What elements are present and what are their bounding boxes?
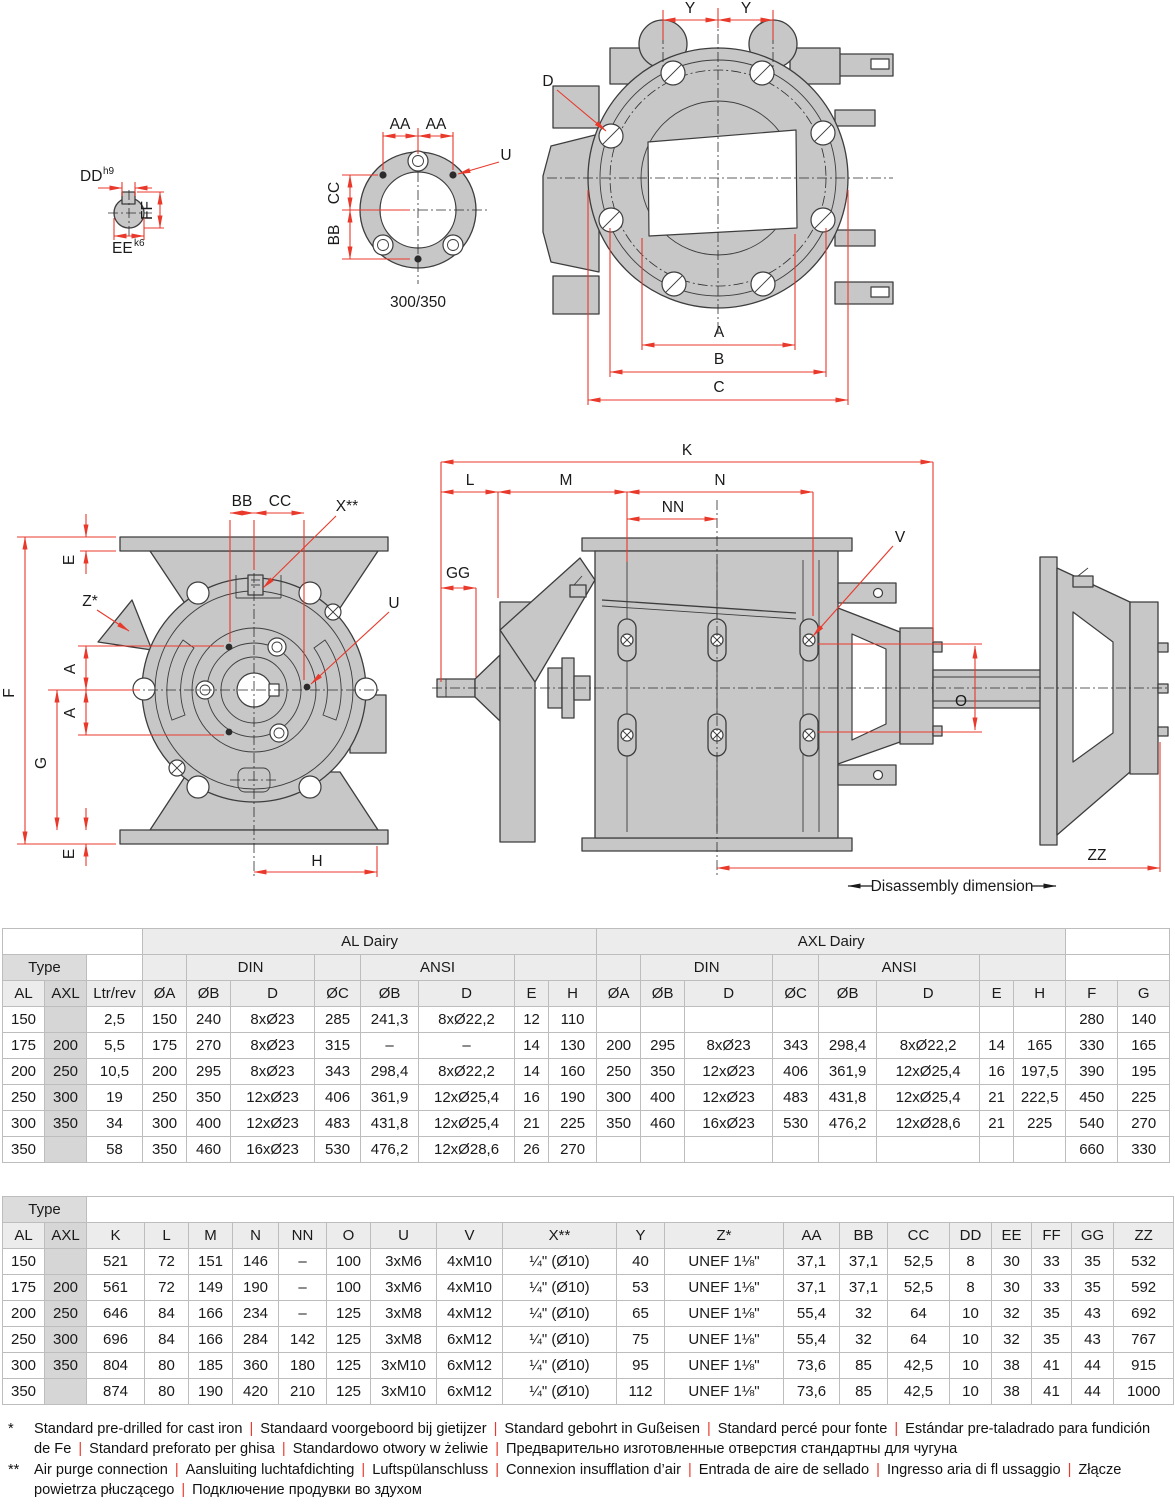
cell-r1-c7: 100 (327, 1275, 371, 1301)
header-row: AL DairyAXL Dairy (3, 929, 1170, 955)
cell-r2-c6: 343 (315, 1059, 361, 1085)
cell-r4-c20: 270 (1118, 1111, 1170, 1137)
separator: | (488, 1462, 506, 1478)
cell-r3-c13: 12xØ23 (685, 1085, 773, 1111)
dim-label-dd-tolerance: h9 (103, 166, 115, 177)
footnote: **Air purge connection|Aansluiting lucht… (8, 1461, 1166, 1500)
cell-r5-c0: 350 (3, 1137, 45, 1163)
cell-r5-c6: 210 (279, 1379, 327, 1405)
cell-r1-c1: 200 (45, 1275, 87, 1301)
separator: | (887, 1421, 905, 1437)
dim-label-x: X** (336, 498, 358, 515)
header-cell (515, 955, 597, 981)
cell-r0-c2: 521 (87, 1249, 145, 1275)
header-row: ALAXLKLMNNNOUVX**YZ*AABBCCDDEEFFGGZZ (3, 1223, 1174, 1249)
cell-r3-c14: 32 (840, 1327, 888, 1353)
table-row: 350874801904202101253xM106xM12¼" (Ø10)11… (3, 1379, 1174, 1405)
cell-r0-c0: 150 (3, 1249, 45, 1275)
cell-r0-c4: 240 (187, 1007, 231, 1033)
cell-r4-c16: 12xØ28,6 (877, 1111, 980, 1137)
cell-r3-c19: 43 (1072, 1327, 1114, 1353)
cell-r0-c10: ¼" (Ø10) (503, 1249, 617, 1275)
cell-r2-c2: 646 (87, 1301, 145, 1327)
cell-r2-c15: 361,9 (819, 1059, 877, 1085)
cell-r1-c14: 37,1 (840, 1275, 888, 1301)
cell-r2-c18: 35 (1032, 1301, 1072, 1327)
header-zz: ZZ (1114, 1223, 1174, 1249)
separator: | (700, 1421, 718, 1437)
dim-label-e-top: E (61, 555, 78, 565)
cell-r1-c3: 175 (143, 1033, 187, 1059)
cell-r3-c5: 12xØ23 (231, 1085, 315, 1111)
cell-r2-c13: 55,4 (784, 1301, 840, 1327)
cell-r5-c7: 125 (327, 1379, 371, 1405)
cell-r4-c0: 300 (3, 1111, 45, 1137)
header-o: O (327, 1223, 371, 1249)
cell-r4-c18: 41 (1032, 1353, 1072, 1379)
cell-r1-c7: – (361, 1033, 419, 1059)
separator: | (681, 1462, 699, 1478)
cell-r0-c6: 285 (315, 1007, 361, 1033)
dim-label-ee: EE (112, 240, 133, 257)
cell-r2-c1: 250 (45, 1301, 87, 1327)
header-row: Type (3, 1197, 1174, 1223)
cell-r1-c17: 14 (980, 1033, 1014, 1059)
cell-r2-c12: 350 (641, 1059, 685, 1085)
cell-r4-c4: 400 (187, 1111, 231, 1137)
cell-r2-c14: 406 (773, 1059, 819, 1085)
cell-r5-c16: 10 (950, 1379, 992, 1405)
header-cell (1066, 929, 1170, 955)
cell-r1-c9: 14 (515, 1033, 549, 1059)
dim-label-m: M (560, 472, 573, 489)
cell-r3-c1: 300 (45, 1327, 87, 1353)
table-row: 1752005,51752708xØ23315––141302002958xØ2… (3, 1033, 1170, 1059)
cell-r2-c20: 195 (1118, 1059, 1170, 1085)
cell-r4-c11: 350 (597, 1111, 641, 1137)
cell-r3-c16: 10 (950, 1327, 992, 1353)
cell-r0-c17: 30 (992, 1249, 1032, 1275)
cell-r3-c14: 483 (773, 1085, 819, 1111)
cell-r3-c4: 166 (189, 1327, 233, 1353)
cell-r1-c19: 35 (1072, 1275, 1114, 1301)
cell-r2-c16: 10 (950, 1301, 992, 1327)
header-al: AL (3, 1223, 45, 1249)
cell-r2-c5: 234 (233, 1301, 279, 1327)
cell-r1-c10: ¼" (Ø10) (503, 1275, 617, 1301)
cell-r0-c8: 3xM6 (371, 1249, 437, 1275)
cell-r2-c4: 166 (189, 1301, 233, 1327)
cell-r0-c2: 2,5 (87, 1007, 143, 1033)
header-y: Y (617, 1223, 665, 1249)
header-gg: GG (1072, 1223, 1114, 1249)
dim-label-b: B (714, 351, 724, 368)
cell-r1-c14: 343 (773, 1033, 819, 1059)
header-bb: BB (840, 1223, 888, 1249)
separator: | (488, 1441, 506, 1457)
cell-r2-c11: 65 (617, 1301, 665, 1327)
cell-r5-c15 (819, 1137, 877, 1163)
cell-r1-c20: 165 (1118, 1033, 1170, 1059)
cell-r3-c11: 300 (597, 1085, 641, 1111)
cell-r2-c10: 160 (549, 1059, 597, 1085)
cell-r0-c0: 150 (3, 1007, 45, 1033)
cell-r3-c10: 190 (549, 1085, 597, 1111)
cell-r1-c2: 5,5 (87, 1033, 143, 1059)
dim-label-y-left: Y (685, 0, 695, 17)
cell-r0-c18: 33 (1032, 1249, 1072, 1275)
cell-r1-c13: 37,1 (784, 1275, 840, 1301)
cell-r5-c5: 420 (233, 1379, 279, 1405)
header-cell (980, 955, 1066, 981)
cell-r1-c4: 149 (189, 1275, 233, 1301)
cell-r5-c13 (685, 1137, 773, 1163)
cell-r1-c0: 175 (3, 1275, 45, 1301)
cell-r3-c17: 32 (992, 1327, 1032, 1353)
cell-r5-c14: 85 (840, 1379, 888, 1405)
cell-r4-c15: 476,2 (819, 1111, 877, 1137)
cell-r5-c19: 660 (1066, 1137, 1118, 1163)
cell-r5-c1 (45, 1137, 87, 1163)
cell-r0-c8: 8xØ22,2 (419, 1007, 515, 1033)
cell-r4-c1: 350 (45, 1353, 87, 1379)
cell-r5-c10: 270 (549, 1137, 597, 1163)
cell-r0-c16: 8 (950, 1249, 992, 1275)
header-k: K (87, 1223, 145, 1249)
cell-r4-c17: 38 (992, 1353, 1032, 1379)
header-d: D (877, 981, 980, 1007)
cell-r2-c11: 250 (597, 1059, 641, 1085)
cell-r4-c19: 540 (1066, 1111, 1118, 1137)
header-din: DIN (641, 955, 773, 981)
cell-r1-c18: 165 (1014, 1033, 1066, 1059)
dim-label-aa-right: AA (426, 116, 447, 133)
cell-r5-c6: 530 (315, 1137, 361, 1163)
cell-r4-c6: 483 (315, 1111, 361, 1137)
header-dd: DD (950, 1223, 992, 1249)
cell-r3-c17: 21 (980, 1085, 1014, 1111)
cell-r4-c6: 180 (279, 1353, 327, 1379)
cell-r0-c5: 146 (233, 1249, 279, 1275)
header-d: D (231, 981, 315, 1007)
cell-r2-c3: 200 (143, 1059, 187, 1085)
shaft-section-drawing: DD h9 FF EE k6 (60, 140, 210, 270)
table-row: 2503001925035012xØ23406361,912xØ25,41619… (3, 1085, 1170, 1111)
cell-r4-c4: 185 (189, 1353, 233, 1379)
cell-r5-c4: 190 (189, 1379, 233, 1405)
cell-r4-c9: 6xM12 (437, 1353, 503, 1379)
cell-r4-c12: 460 (641, 1111, 685, 1137)
cell-r1-c4: 270 (187, 1033, 231, 1059)
cell-r0-c11: 40 (617, 1249, 665, 1275)
cell-r5-c12: UNEF 1⅛" (665, 1379, 784, 1405)
dairy-flange-dimensions-table: AL DairyAXL DairyTypeDINANSIDINANSIALAXL… (2, 928, 1170, 1163)
dim-label-d: D (542, 73, 553, 90)
cell-r2-c16: 12xØ25,4 (877, 1059, 980, 1085)
cell-r2-c17: 32 (992, 1301, 1032, 1327)
header-ansi: ANSI (361, 955, 515, 981)
cell-r4-c17: 21 (980, 1111, 1014, 1137)
header--c: ØC (773, 981, 819, 1007)
cell-r1-c2: 561 (87, 1275, 145, 1301)
cell-r0-c1 (45, 1007, 87, 1033)
cell-r5-c18: 41 (1032, 1379, 1072, 1405)
cell-r2-c4: 295 (187, 1059, 231, 1085)
dim-label-aa-left: AA (390, 116, 411, 133)
cell-r5-c18 (1014, 1137, 1066, 1163)
cell-r4-c3: 80 (145, 1353, 189, 1379)
cell-r4-c16: 10 (950, 1353, 992, 1379)
dim-label-cc: CC (269, 493, 291, 510)
cell-r5-c16 (877, 1137, 980, 1163)
header-cell (315, 955, 361, 981)
cell-r4-c7: 125 (327, 1353, 371, 1379)
cell-r1-c3: 72 (145, 1275, 189, 1301)
header-ff: FF (1032, 1223, 1072, 1249)
dim-label-e-bottom: E (61, 849, 78, 859)
side-view-drawing: K L M N NN GG V O ZZ Disassembly dimensi… (430, 430, 1175, 910)
cell-r5-c9: 26 (515, 1137, 549, 1163)
cell-r5-c0: 350 (3, 1379, 45, 1405)
cell-r1-c0: 175 (3, 1033, 45, 1059)
cell-r1-c1: 200 (45, 1033, 87, 1059)
header--a: ØA (597, 981, 641, 1007)
cell-r5-c13: 73,6 (784, 1379, 840, 1405)
header-cell (3, 929, 143, 955)
cell-r5-c1 (45, 1379, 87, 1405)
dim-label-l: L (466, 472, 475, 489)
cell-r3-c13: 55,4 (784, 1327, 840, 1353)
cell-r5-c17 (980, 1137, 1014, 1163)
separator: | (354, 1462, 372, 1478)
cell-r1-c13: 8xØ23 (685, 1033, 773, 1059)
cell-r3-c9: 6xM12 (437, 1327, 503, 1353)
general-dimensions-table: TypeALAXLKLMNNNOUVX**YZ*AABBCCDDEEFFGGZZ… (2, 1196, 1174, 1405)
header-type: Type (3, 1197, 87, 1223)
cell-r2-c6: – (279, 1301, 327, 1327)
footnote-text: Standard pre-drilled for cast iron|Stand… (34, 1421, 1150, 1457)
cell-r0-c3: 72 (145, 1249, 189, 1275)
dim-label-k: K (682, 442, 693, 459)
table-row: 15052172151146–1003xM64xM10¼" (Ø10)40UNE… (3, 1249, 1174, 1275)
cell-r0-c13: 37,1 (784, 1249, 840, 1275)
header-din: DIN (187, 955, 315, 981)
cell-r2-c9: 14 (515, 1059, 549, 1085)
cell-r3-c18: 222,5 (1014, 1085, 1066, 1111)
cell-r0-c19: 35 (1072, 1249, 1114, 1275)
cell-r2-c2: 10,5 (87, 1059, 143, 1085)
header-al: AL (3, 981, 45, 1007)
dim-label-g: G (33, 757, 50, 769)
cell-r3-c12: 400 (641, 1085, 685, 1111)
dim-label-c: C (713, 379, 724, 396)
cell-r5-c19: 44 (1072, 1379, 1114, 1405)
separator: | (168, 1462, 186, 1478)
cell-r0-c4: 151 (189, 1249, 233, 1275)
cell-r5-c15: 42,5 (888, 1379, 950, 1405)
cell-r4-c1: 350 (45, 1111, 87, 1137)
cell-r3-c6: 142 (279, 1327, 327, 1353)
cell-r0-c16 (877, 1007, 980, 1033)
cell-r5-c8: 3xM10 (371, 1379, 437, 1405)
dim-label-ee-tolerance: k6 (134, 238, 145, 249)
cell-r4-c20: 915 (1114, 1353, 1174, 1379)
separator: | (275, 1441, 293, 1457)
dim-label-f: F (1, 688, 18, 697)
cell-r4-c13: 73,6 (784, 1353, 840, 1379)
header-h: H (549, 981, 597, 1007)
cell-r0-c14 (773, 1007, 819, 1033)
cell-r3-c5: 284 (233, 1327, 279, 1353)
cell-r1-c16: 8xØ22,2 (877, 1033, 980, 1059)
cell-r0-c14: 37,1 (840, 1249, 888, 1275)
cell-r2-c20: 692 (1114, 1301, 1174, 1327)
cell-r4-c8: 12xØ25,4 (419, 1111, 515, 1137)
cell-r3-c3: 84 (145, 1327, 189, 1353)
separator: | (71, 1441, 89, 1457)
table-row: 250300696841662841421253xM86xM12¼" (Ø10)… (3, 1327, 1174, 1353)
cell-r0-c19: 280 (1066, 1007, 1118, 1033)
dim-label-dd: DD (80, 168, 102, 185)
cell-r4-c5: 12xØ23 (231, 1111, 315, 1137)
separator: | (1061, 1462, 1079, 1478)
header-d: D (685, 981, 773, 1007)
footnote: *Standard pre-drilled for cast iron|Stan… (8, 1420, 1166, 1459)
cell-r1-c8: – (419, 1033, 515, 1059)
cell-r4-c5: 360 (233, 1353, 279, 1379)
cell-r5-c17: 38 (992, 1379, 1032, 1405)
cell-r0-c20: 140 (1118, 1007, 1170, 1033)
dim-label-y-right: Y (741, 0, 751, 17)
cell-r5-c5: 16xØ23 (231, 1137, 315, 1163)
inlet-view-drawing: Y Y D A B C (535, 0, 965, 412)
dim-label-v: V (895, 529, 906, 546)
cell-r4-c8: 3xM10 (371, 1353, 437, 1379)
cell-r3-c11: 75 (617, 1327, 665, 1353)
dim-label-ff: FF (139, 201, 156, 220)
cell-r4-c10: 225 (549, 1111, 597, 1137)
header-l: L (145, 1223, 189, 1249)
separator: | (174, 1482, 192, 1498)
header-f: F (1066, 981, 1118, 1007)
cell-r2-c0: 200 (3, 1301, 45, 1327)
header-type: Type (3, 955, 87, 981)
header-cell (597, 955, 641, 981)
header-al-dairy: AL Dairy (143, 929, 597, 955)
cell-r0-c15 (819, 1007, 877, 1033)
cell-r5-c7: 476,2 (361, 1137, 419, 1163)
cell-r0-c10: 110 (549, 1007, 597, 1033)
cell-r3-c2: 696 (87, 1327, 145, 1353)
cell-r2-c19: 43 (1072, 1301, 1114, 1327)
cell-r2-c7: 125 (327, 1301, 371, 1327)
cell-r3-c0: 250 (3, 1327, 45, 1353)
cell-r3-c8: 3xM8 (371, 1327, 437, 1353)
cell-r1-c15: 52,5 (888, 1275, 950, 1301)
header-d: D (419, 981, 515, 1007)
header-cell (1066, 955, 1170, 981)
cell-r2-c7: 298,4 (361, 1059, 419, 1085)
cell-r4-c19: 44 (1072, 1353, 1114, 1379)
cell-r2-c10: ¼" (Ø10) (503, 1301, 617, 1327)
cell-r2-c8: 8xØ22,2 (419, 1059, 515, 1085)
dim-label-u: U (500, 147, 511, 164)
cell-r0-c17 (980, 1007, 1014, 1033)
cell-r2-c9: 4xM12 (437, 1301, 503, 1327)
cell-r2-c19: 390 (1066, 1059, 1118, 1085)
disassembly-note: Disassembly dimension (871, 878, 1034, 895)
cell-r4-c2: 34 (87, 1111, 143, 1137)
dim-label-gg: GG (446, 565, 470, 582)
cell-r0-c1 (45, 1249, 87, 1275)
header-nn: NN (279, 1223, 327, 1249)
cell-r0-c15: 52,5 (888, 1249, 950, 1275)
header--c: ØC (315, 981, 361, 1007)
cell-r0-c9: 4xM10 (437, 1249, 503, 1275)
cell-r1-c11: 53 (617, 1275, 665, 1301)
table-row: 3505835046016xØ23530476,212xØ28,62627066… (3, 1137, 1170, 1163)
cell-r0-c3: 150 (143, 1007, 187, 1033)
footnote-text: Air purge connection|Aansluiting luchtaf… (34, 1462, 1121, 1498)
cell-r1-c20: 592 (1114, 1275, 1174, 1301)
cell-r3-c20: 767 (1114, 1327, 1174, 1353)
cell-r4-c9: 21 (515, 1111, 549, 1137)
table-row: 20025010,52002958xØ23343298,48xØ22,21416… (3, 1059, 1170, 1085)
cell-r1-c18: 33 (1032, 1275, 1072, 1301)
dim-label-bb: BB (232, 493, 253, 510)
header-axl: AXL (45, 981, 87, 1007)
cell-r3-c9: 16 (515, 1085, 549, 1111)
cell-r0-c11 (597, 1007, 641, 1033)
dim-label-bb: BB (326, 225, 343, 246)
cell-r4-c14: 85 (840, 1353, 888, 1379)
table-row: 1502,51502408xØ23285241,38xØ22,212110280… (3, 1007, 1170, 1033)
cell-r2-c15: 64 (888, 1301, 950, 1327)
cell-r2-c18: 197,5 (1014, 1059, 1066, 1085)
header-cell (87, 1197, 1174, 1223)
cell-r0-c20: 532 (1114, 1249, 1174, 1275)
cell-r4-c15: 42,5 (888, 1353, 950, 1379)
header--b: ØB (361, 981, 419, 1007)
header-cell (143, 955, 187, 981)
cell-r2-c5: 8xØ23 (231, 1059, 315, 1085)
cell-r4-c2: 804 (87, 1353, 145, 1379)
cell-r3-c3: 250 (143, 1085, 187, 1111)
cell-r2-c3: 84 (145, 1301, 189, 1327)
cell-r4-c12: UNEF 1⅛" (665, 1353, 784, 1379)
table-row: 300350804801853601801253xM106xM12¼" (Ø10… (3, 1353, 1174, 1379)
header-v: V (437, 1223, 503, 1249)
cell-r0-c5: 8xØ23 (231, 1007, 315, 1033)
cell-r5-c20: 330 (1118, 1137, 1170, 1163)
header-h: H (1014, 981, 1066, 1007)
cell-r5-c11 (597, 1137, 641, 1163)
cell-r1-c5: 8xØ23 (231, 1033, 315, 1059)
cell-r1-c6: 315 (315, 1033, 361, 1059)
cell-r0-c18 (1014, 1007, 1066, 1033)
dim-label-a: A (714, 324, 725, 341)
cell-r1-c6: – (279, 1275, 327, 1301)
cell-r3-c19: 450 (1066, 1085, 1118, 1111)
dim-label-a-upper: A (62, 663, 79, 674)
table-row: 20025064684166234–1253xM84xM12¼" (Ø10)65… (3, 1301, 1174, 1327)
header-n: N (233, 1223, 279, 1249)
dim-label-h: H (311, 853, 322, 870)
cell-r0-c7: 241,3 (361, 1007, 419, 1033)
cell-r4-c7: 431,8 (361, 1111, 419, 1137)
cell-r0-c13 (685, 1007, 773, 1033)
separator: | (869, 1462, 887, 1478)
